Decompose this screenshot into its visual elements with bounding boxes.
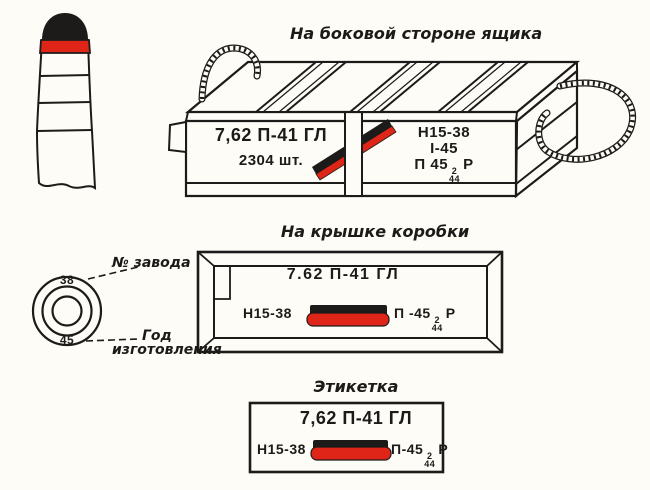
crate-powder-fraction: 244 [449, 168, 460, 183]
crate-center-strap [345, 112, 362, 196]
lid-color-stripe [307, 305, 389, 326]
lid-caliber-marking: 7.62 П-41 ГЛ [233, 266, 453, 284]
callout-year-label-line2: изготовления [112, 342, 222, 358]
label-caliber-marking: 7,62 П-41 ГЛ [256, 408, 456, 429]
ammunition-marking-diagram: На боковой стороне ящика На крышке короб… [0, 0, 650, 490]
crate-powder-marking: П 45244Р [394, 156, 494, 183]
label-powder-prefix: П-45 [391, 441, 423, 457]
crate-powder-suffix: Р [463, 156, 474, 173]
title-crate-side: На боковой стороне ящика [290, 24, 510, 43]
lid-powder-suffix: Р [446, 305, 456, 321]
crate-quantity-marking: 2304 шт. [203, 152, 339, 169]
label-powder-marking: П-45244Р [391, 441, 448, 468]
crate-powder-sub: 44 [449, 176, 460, 184]
crate-lot-marking: Н15-38 [398, 124, 490, 141]
leader-line-year [86, 339, 138, 341]
lid-lot-marking: Н15-38 [243, 305, 292, 321]
cartridge-base-drawing [33, 267, 138, 345]
bullet-tip-drawing [37, 13, 95, 188]
label-color-stripe [311, 440, 391, 460]
callout-factory-label: № завода [112, 255, 191, 271]
label-powder-sub: 44 [424, 461, 435, 469]
crate-powder-prefix: П 45 [414, 156, 448, 173]
cartridge-factory-number: 38 [53, 273, 81, 287]
crate-caliber-marking: 7,62 П-41 ГЛ [203, 125, 339, 146]
bullet-black-tip [42, 13, 88, 40]
lid-powder-marking: П -45244Р [394, 305, 456, 332]
lid-powder-fraction: 244 [432, 317, 443, 332]
bullet-red-band [40, 40, 90, 53]
lid-powder-prefix: П -45 [394, 305, 431, 321]
crate-date-marking: I-45 [406, 140, 482, 157]
title-carton-lid: На крышке коробки [270, 222, 480, 241]
label-powder-suffix: Р [438, 441, 448, 457]
label-lot-marking: Н15-38 [257, 441, 306, 457]
lid-powder-sub: 44 [432, 325, 443, 333]
label-powder-fraction: 244 [424, 453, 435, 468]
title-label: Этикетка [256, 377, 456, 396]
cartridge-year-number: 45 [53, 333, 81, 347]
